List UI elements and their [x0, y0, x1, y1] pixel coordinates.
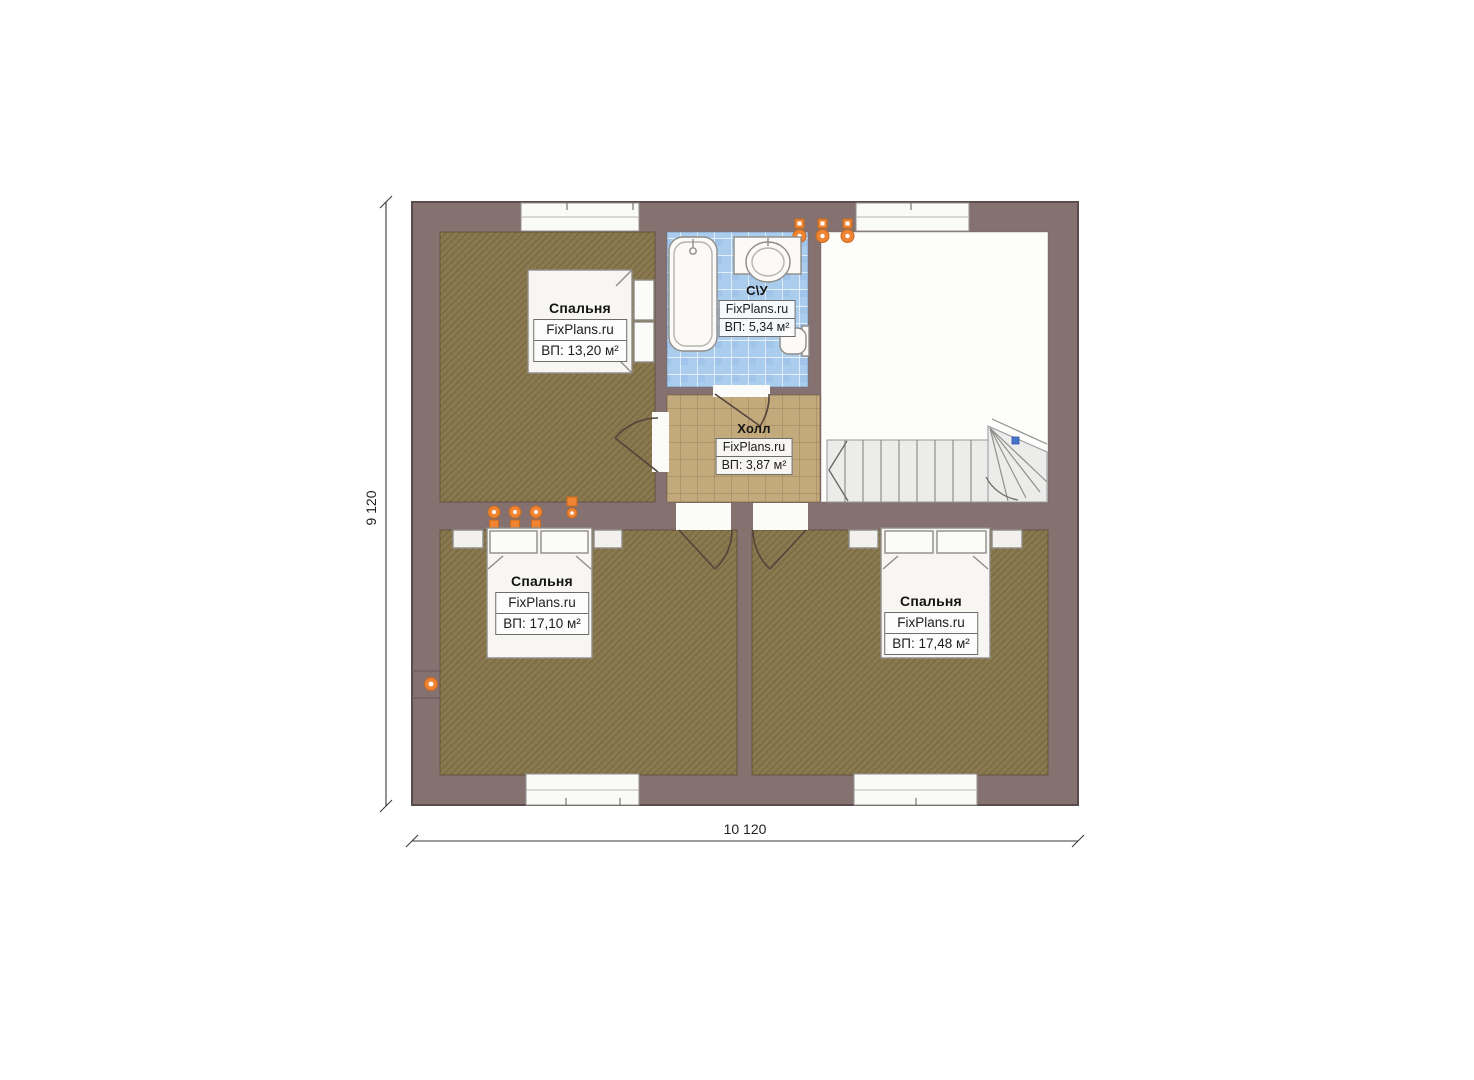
nightstand	[594, 530, 622, 548]
brand-label: FixPlans.ru	[720, 301, 795, 318]
nightstand	[453, 530, 483, 548]
room-name: Спальня	[884, 593, 978, 609]
room-info-box: FixPlans.ru ВП: 17,10 м²	[495, 592, 589, 635]
stair-marker	[1012, 437, 1019, 444]
area-label: ВП: 13,20 м²	[534, 340, 626, 361]
area-label: ВП: 17,48 м²	[885, 633, 977, 654]
window-top-left	[521, 203, 639, 231]
dimension-width-label: 10 120	[724, 821, 767, 837]
brand-label: FixPlans.ru	[717, 439, 792, 456]
room-name: С\У	[719, 283, 796, 298]
room-name: Холл	[716, 421, 793, 436]
window-top-right	[856, 203, 969, 231]
door-opening-bedroom-bottom-left	[676, 503, 731, 530]
brand-label: FixPlans.ru	[885, 613, 977, 633]
brand-label: FixPlans.ru	[496, 593, 588, 613]
dimension-height	[380, 196, 392, 812]
nightstand	[992, 530, 1022, 548]
floor-plan-page: 9 120 10 120 Спальня FixPlans.ru ВП: 13,…	[0, 0, 1474, 1080]
room-info-box: FixPlans.ru ВП: 5,34 м²	[719, 300, 796, 337]
area-label: ВП: 17,10 м²	[496, 613, 588, 634]
window-bottom-right	[854, 774, 977, 805]
door-opening-bathroom	[713, 385, 770, 397]
room-label-bedroom-top-left: Спальня FixPlans.ru ВП: 13,20 м²	[533, 300, 627, 362]
nightstand	[849, 530, 878, 548]
room-label-bedroom-bottom-right: Спальня FixPlans.ru ВП: 17,48 м²	[884, 593, 978, 655]
room-info-box: FixPlans.ru ВП: 13,20 м²	[533, 319, 627, 362]
stair-run	[827, 440, 988, 502]
room-name: Спальня	[533, 300, 627, 316]
room-label-hall: Холл FixPlans.ru ВП: 3,87 м²	[716, 421, 793, 475]
bathtub	[669, 237, 717, 351]
vent-icon	[841, 219, 854, 243]
vent-icon	[816, 219, 829, 243]
room-name: Спальня	[495, 573, 589, 589]
area-label: ВП: 3,87 м²	[717, 456, 792, 474]
brand-label: FixPlans.ru	[534, 320, 626, 340]
room-info-box: FixPlans.ru ВП: 3,87 м²	[716, 438, 793, 475]
room-info-box: FixPlans.ru ВП: 17,48 м²	[884, 612, 978, 655]
window-bottom-left	[526, 774, 639, 805]
room-label-bathroom: С\У FixPlans.ru ВП: 5,34 м²	[719, 283, 796, 337]
room-label-bedroom-bottom-left: Спальня FixPlans.ru ВП: 17,10 м²	[495, 573, 589, 635]
dimension-height-label: 9 120	[363, 490, 379, 525]
door-opening-bedroom-top-left	[652, 412, 669, 472]
wall-light-icon	[425, 678, 438, 691]
door-opening-bedroom-bottom-right	[753, 503, 808, 530]
floor-plan-drawing: 9 120 10 120	[0, 0, 1474, 1080]
area-label: ВП: 5,34 м²	[720, 318, 795, 336]
